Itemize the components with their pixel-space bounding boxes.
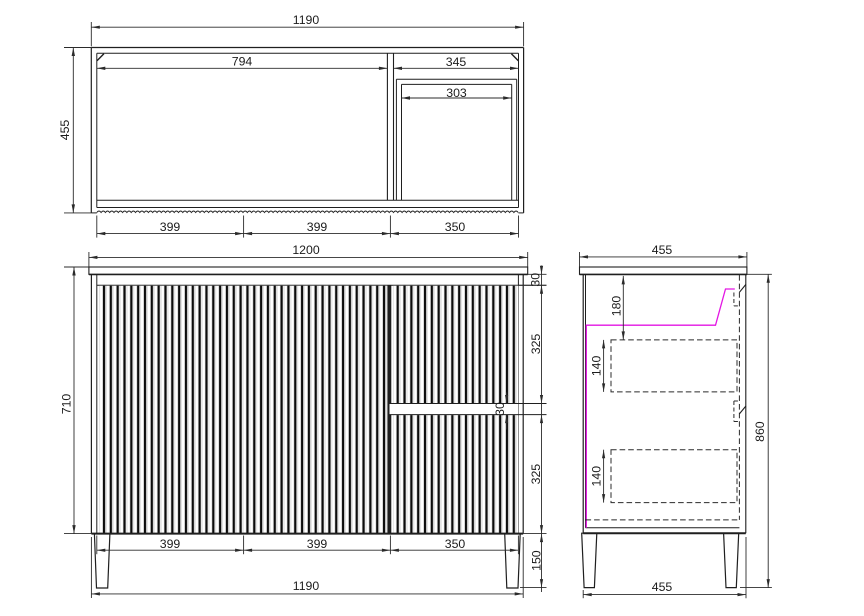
svg-text:150: 150 [529,550,543,571]
svg-text:350: 350 [445,537,466,551]
svg-text:399: 399 [307,537,328,551]
svg-text:350: 350 [445,220,466,234]
svg-text:30: 30 [529,273,543,287]
svg-text:140: 140 [589,355,603,376]
svg-text:1190: 1190 [293,579,320,593]
svg-text:794: 794 [232,54,253,68]
svg-text:455: 455 [652,580,673,594]
svg-text:180: 180 [610,296,624,317]
svg-text:1190: 1190 [293,13,320,27]
svg-text:345: 345 [446,55,467,69]
svg-text:1200: 1200 [292,243,320,257]
svg-text:455: 455 [652,243,673,257]
svg-text:303: 303 [446,86,467,100]
svg-text:455: 455 [58,120,72,141]
svg-text:860: 860 [753,421,767,442]
svg-text:399: 399 [160,537,181,551]
svg-text:325: 325 [529,334,543,355]
svg-text:325: 325 [529,464,543,485]
svg-text:140: 140 [589,466,603,487]
svg-text:710: 710 [60,394,74,415]
svg-text:399: 399 [160,220,181,234]
svg-text:30: 30 [493,402,507,416]
svg-text:399: 399 [307,220,328,234]
